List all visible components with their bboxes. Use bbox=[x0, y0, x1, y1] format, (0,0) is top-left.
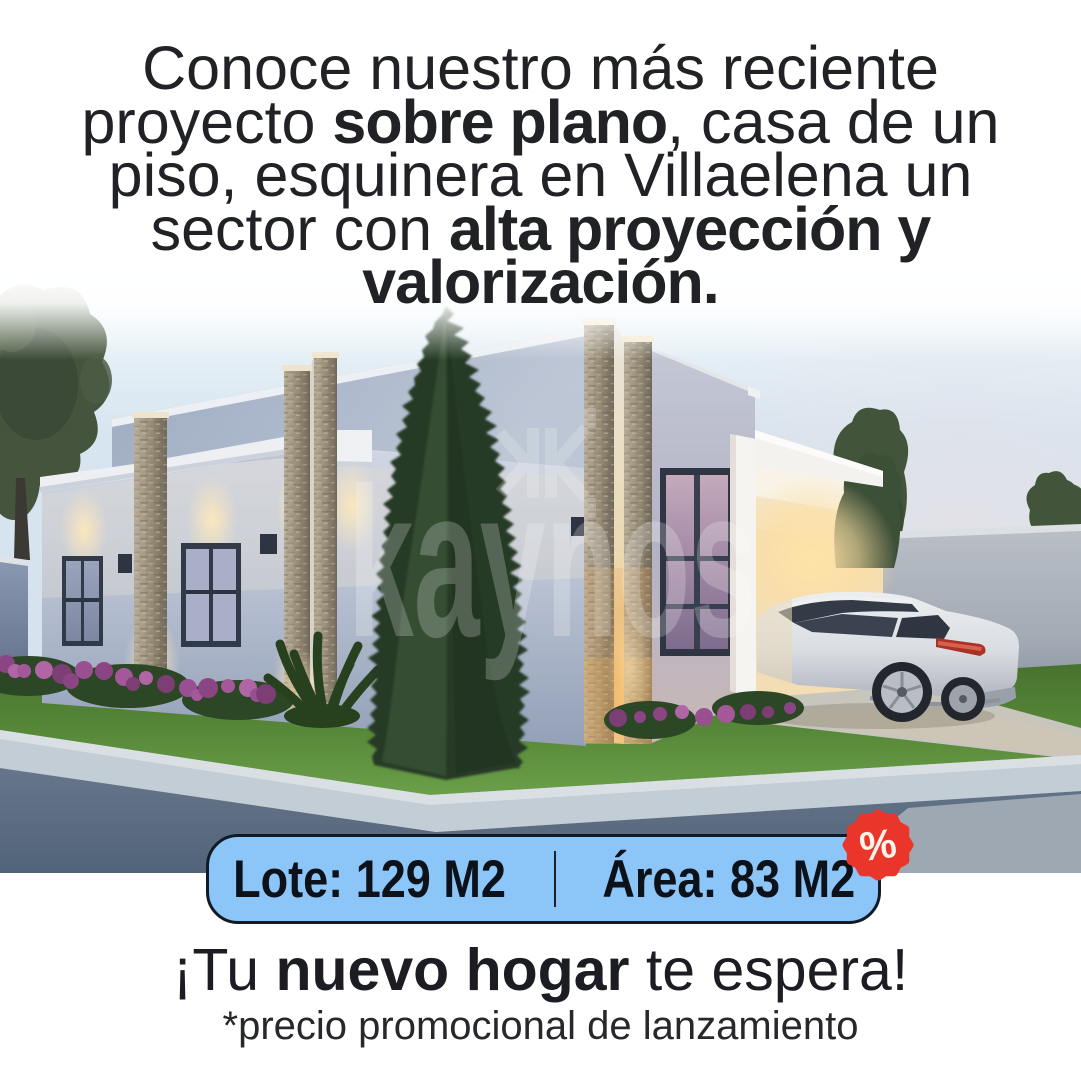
svg-text:%: % bbox=[857, 820, 900, 871]
